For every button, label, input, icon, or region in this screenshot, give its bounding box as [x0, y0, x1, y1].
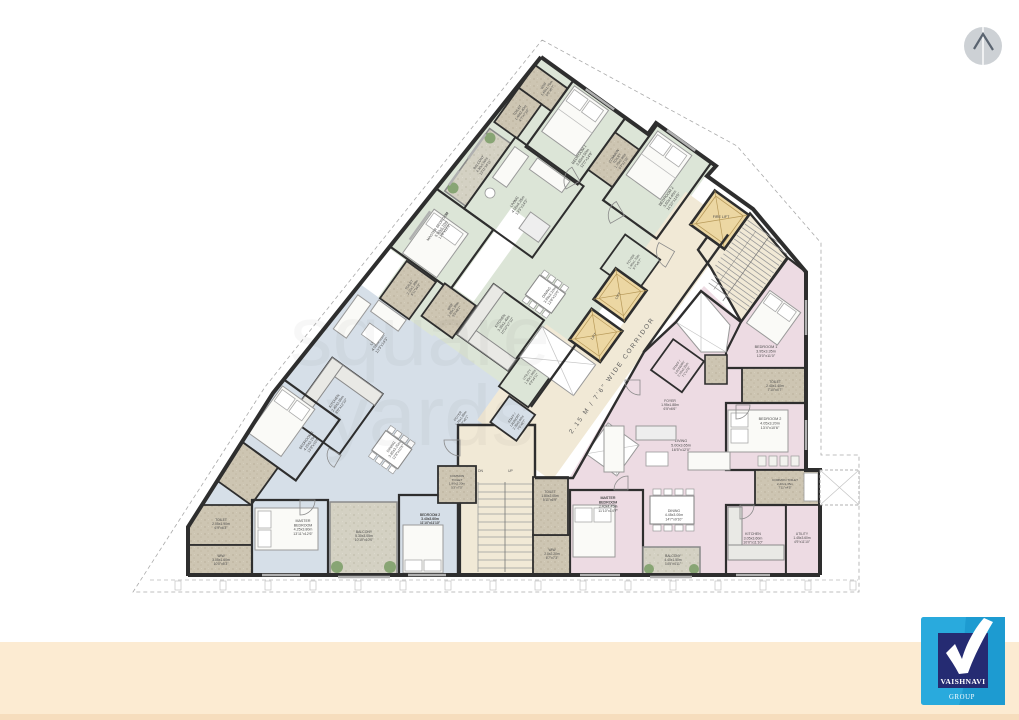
svg-text:BEDROOM 13.95x3.35m13'0"x11'0": BEDROOM 13.95x3.35m13'0"x11'0" [755, 345, 778, 358]
svg-text:VAISHNAVI: VAISHNAVI [940, 677, 985, 686]
svg-text:BEDROOM 23.40x3.60m11'10"x11'1: BEDROOM 23.40x3.60m11'10"x11'10" [420, 513, 441, 525]
svg-text:DN: DN [478, 469, 484, 473]
svg-text:yards: yards [326, 369, 534, 464]
svg-text:MASTERBEDROOM3.40x4.45m11'10"x: MASTERBEDROOM3.40x4.45m11'10"x14'7" [598, 496, 618, 513]
svg-text:BEDROOM 24.05x3.20m13'4"x10'6": BEDROOM 24.05x3.20m13'4"x10'6" [759, 417, 782, 430]
svg-text:BALCONY5.30x3.05m10'10"x10'0": BALCONY5.30x3.05m10'10"x10'0" [355, 530, 374, 542]
svg-text:FIRE LIFT: FIRE LIFT [713, 215, 730, 219]
svg-text:UP: UP [508, 469, 514, 473]
svg-text:GROUP: GROUP [949, 694, 975, 701]
svg-text:MASTERBEDROOM4.25x3.80m13'11"x: MASTERBEDROOM4.25x3.80m13'11"x12'6" [293, 519, 313, 536]
svg-text:BALCONY4.40x1.50m14'5"x4'11": BALCONY4.40x1.50m14'5"x4'11" [664, 554, 681, 566]
svg-text:KITCHEN3.05x3.60m10'0"x11'10": KITCHEN3.05x3.60m10'0"x11'10" [743, 532, 763, 545]
